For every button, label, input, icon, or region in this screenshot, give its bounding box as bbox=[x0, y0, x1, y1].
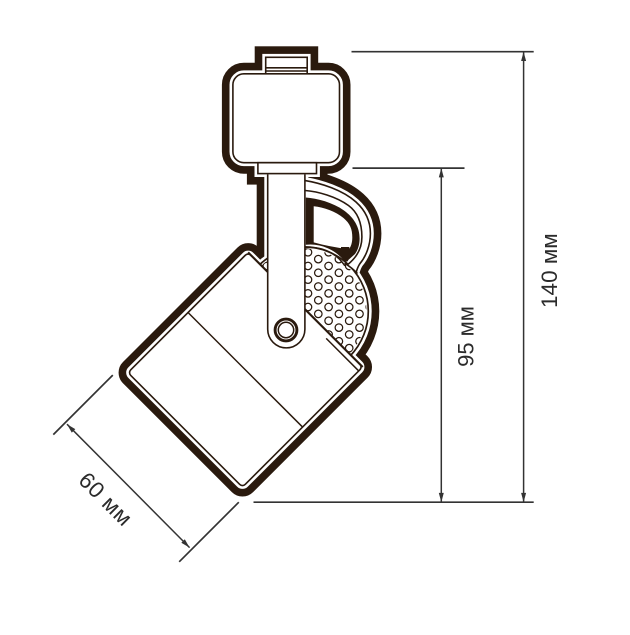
svg-text:95 мм: 95 мм bbox=[454, 306, 479, 367]
svg-text:140 мм: 140 мм bbox=[537, 233, 562, 308]
